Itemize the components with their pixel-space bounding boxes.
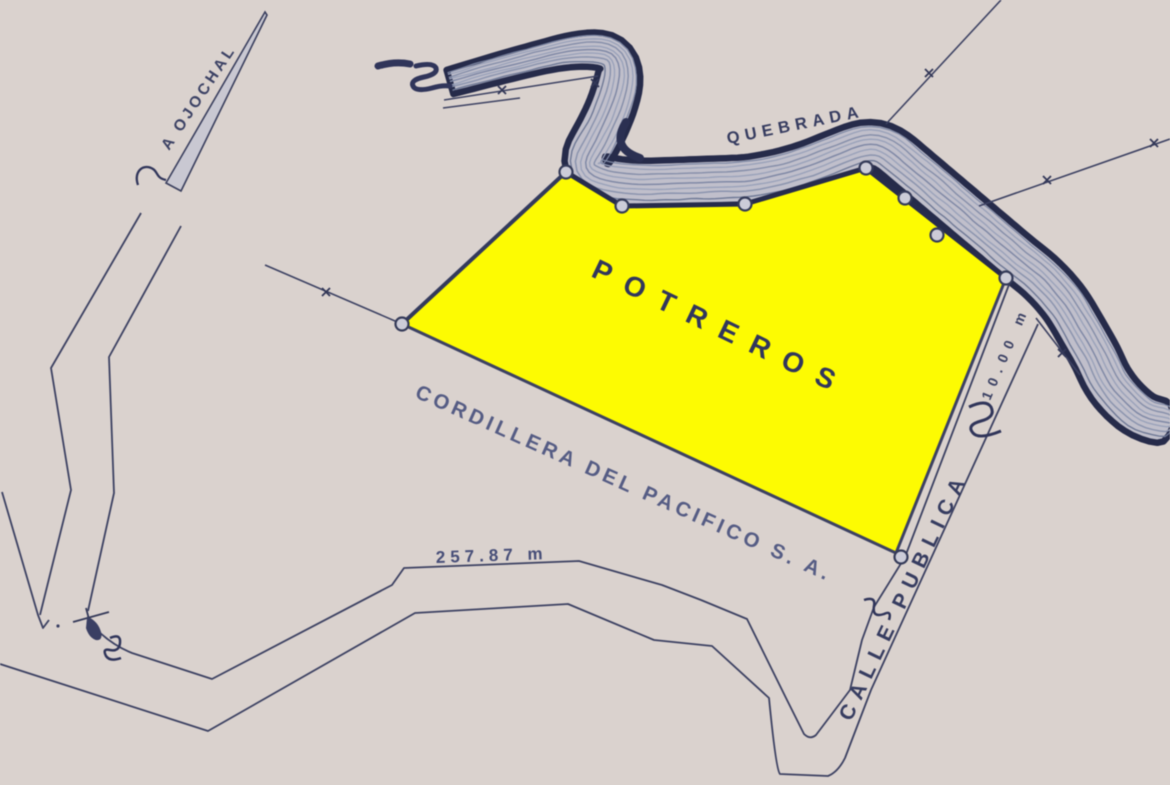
svg-text:257.87 m: 257.87 m — [435, 544, 547, 567]
